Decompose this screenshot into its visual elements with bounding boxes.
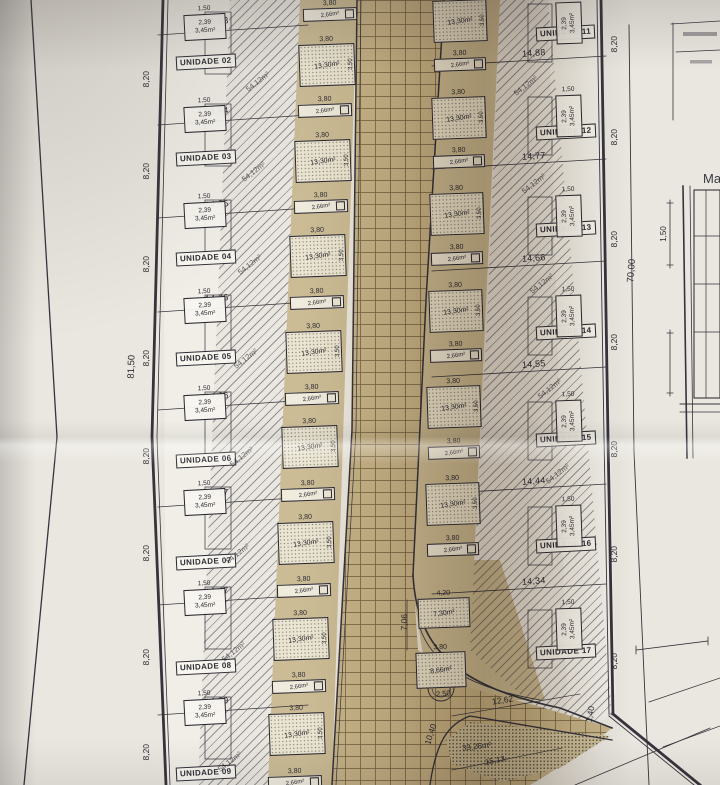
module-area-label: 8,66m² [415,650,467,690]
right-boundary-length-label: 70,00 [626,259,637,283]
left-outer-boundary-line [24,0,57,785]
road-right-curb [413,0,444,575]
fine-print-smudge [683,32,717,36]
bottom-depth-label: 7,06 [400,614,409,631]
edge-partial-text: Ma [703,172,720,185]
road-left-curb [332,0,357,785]
left-inner-boundary-line [152,0,166,785]
facade-detail-drawing [667,186,720,458]
lot-division-lines [158,4,606,759]
plan-linework [0,0,720,785]
right-margin-line [629,25,649,785]
fine-print-smudge [690,60,712,64]
site-plan-photo: 15,03UNIDADE 028,2054,12m²1,502,393,45m²… [0,0,720,785]
detail-height-label: 1,50 [660,226,668,242]
corner-module-b: 3,80 8,66m² [415,651,466,689]
curb-radius-label: 2,50 [436,689,451,698]
module-area-label: 7,30m² [417,596,470,631]
corner-module-a: 4,20 7,30m² [417,597,470,629]
bottom-boundary-arc [430,716,612,785]
left-outer-length-label: 81,50 [127,355,137,379]
paper-fold-crease [0,420,720,464]
bottom-right-adjacent-lines [575,637,720,785]
